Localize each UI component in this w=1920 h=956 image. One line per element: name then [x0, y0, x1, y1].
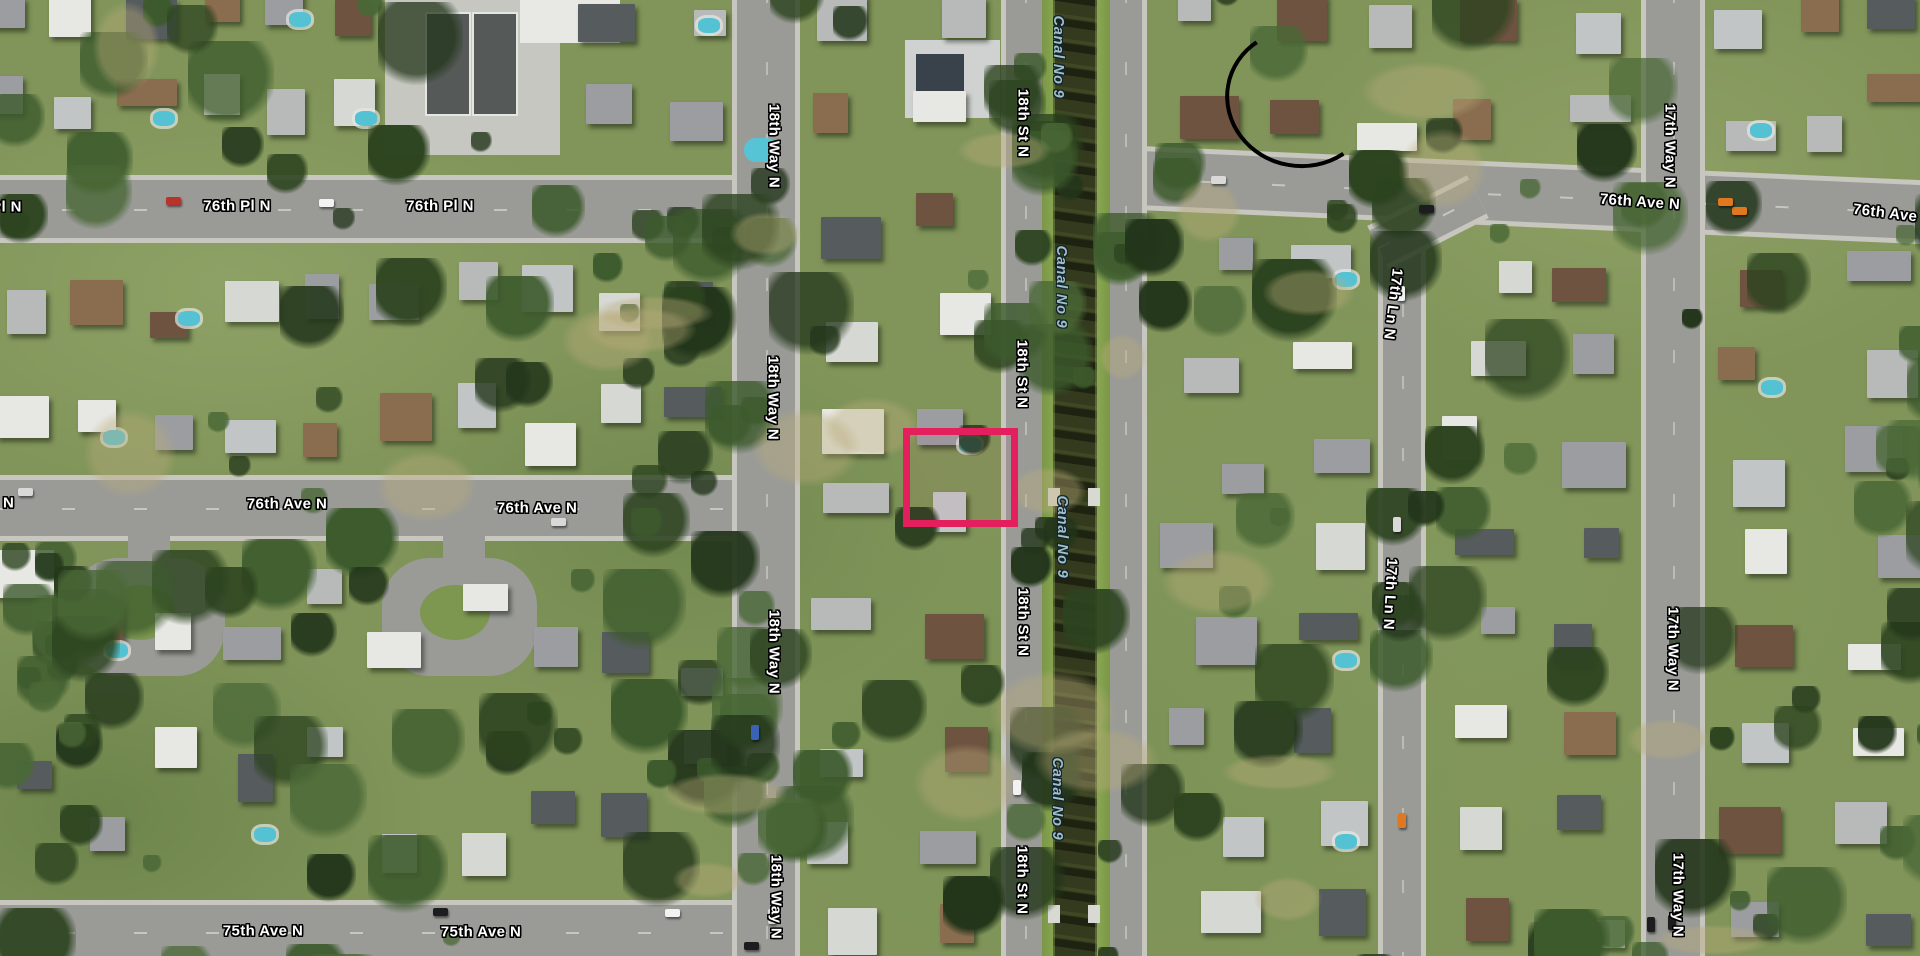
street-label: 76th Pl N	[406, 198, 474, 215]
street-label: 17th Way N	[1662, 104, 1679, 188]
street-label: 18th St N	[1015, 588, 1032, 657]
canal-label: Canal No 9	[1053, 246, 1069, 329]
street-name-labels: 76th Pl N76th Pl N76th Pl N76th Ave N76t…	[0, 0, 1920, 956]
canal-label: Canal No 9	[1054, 496, 1070, 579]
street-label: 76th Pl N	[203, 198, 271, 215]
street-label: 18th St N	[1014, 340, 1031, 409]
canal-label: Canal No 9	[1050, 16, 1066, 99]
street-label: 18th St N	[1015, 89, 1032, 158]
street-label: 75th Ave N	[441, 924, 521, 941]
canal-label: Canal No 9	[1049, 758, 1065, 841]
aerial-parcel-map[interactable]: 76th Pl N76th Pl N76th Pl N76th Ave N76t…	[0, 0, 1920, 956]
street-label: 18th Way N	[768, 855, 785, 939]
street-label: 17th Ln N	[1380, 267, 1406, 340]
street-label: 17th Ln N	[1380, 558, 1401, 631]
street-label: 17th Way N	[1670, 853, 1687, 937]
street-label: 76th Ave N	[1852, 201, 1920, 228]
street-label: 18th Way N	[766, 104, 783, 188]
street-label: 75th Ave N	[223, 923, 303, 940]
street-label: 76th Ave N	[0, 495, 14, 512]
street-label: 18th St N	[1014, 846, 1031, 915]
street-label: 76th Ave N	[247, 496, 327, 513]
street-label: 17th Way N	[1665, 607, 1682, 691]
street-label: 76th Ave N	[497, 500, 577, 517]
street-label: 18th Way N	[765, 356, 782, 440]
street-label: 76th Ave N	[1599, 191, 1680, 214]
street-label: 76th Pl N	[0, 199, 22, 216]
street-label: 18th Way N	[766, 610, 783, 694]
